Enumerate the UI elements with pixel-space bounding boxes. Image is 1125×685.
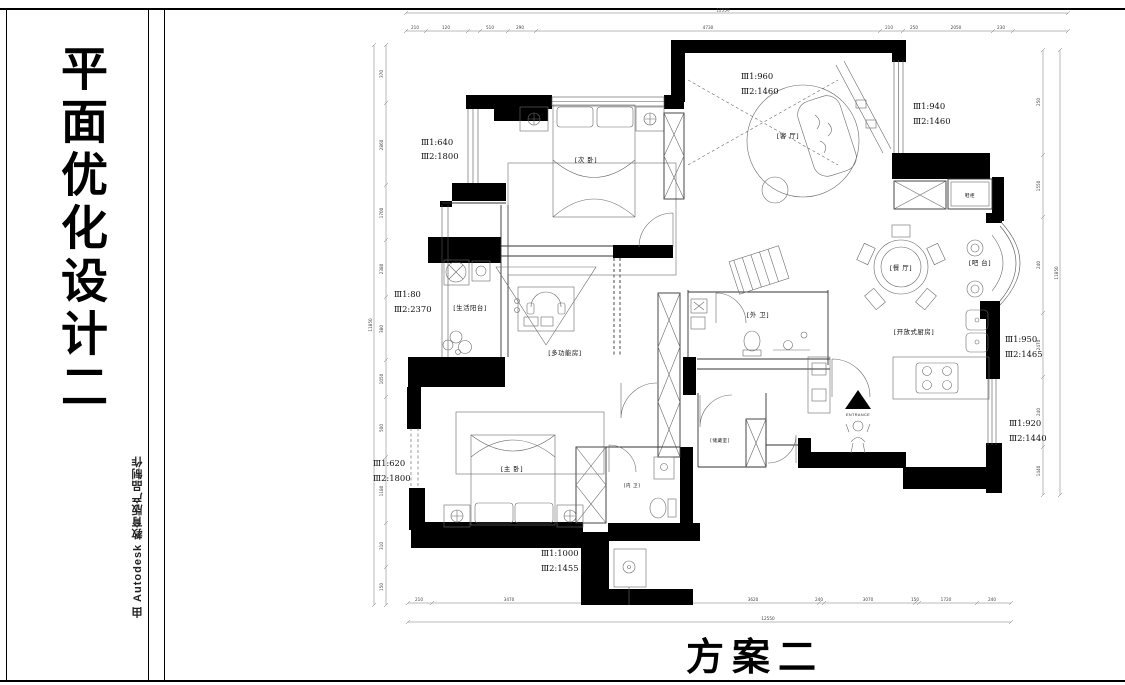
ann-left-top-2: Ⅲ2:1800 (421, 151, 459, 161)
svg-text:210: 210 (411, 25, 419, 30)
storage-fixtures (746, 419, 766, 467)
ann-top-right-2: Ⅲ2:1460 (913, 116, 951, 126)
frame-left-line (6, 8, 7, 682)
svg-text:3070: 3070 (863, 597, 874, 602)
living-label: [客 厅] (777, 131, 799, 140)
autodesk-credit: 由 Autodesk 教育版产品制作 (130, 456, 146, 618)
svg-text:290: 290 (516, 25, 524, 30)
titleblock-line-2 (164, 8, 165, 682)
dining-label: [餐 厅] (890, 263, 912, 272)
kitchen-furniture (893, 310, 989, 399)
svg-text:3620: 3620 (748, 597, 759, 602)
ann-right-low-2: Ⅲ2:1440 (1009, 433, 1047, 443)
svg-text:240: 240 (1036, 408, 1041, 416)
multi-label: [多功能房] (548, 348, 582, 357)
sheet-title: 平面优化设计二 (46, 44, 115, 415)
svg-text:230: 230 (997, 25, 1005, 30)
svg-text:510: 510 (486, 25, 494, 30)
ann-right-mid-1: Ⅲ1:950 (1005, 334, 1037, 344)
balcony-label: [生活阳台] (453, 303, 487, 312)
kitchen-label: [开放式厨房] (894, 327, 934, 336)
master-label: [主 卧] (501, 464, 523, 473)
svg-text:500: 500 (379, 424, 384, 432)
ann-top-right-1: Ⅲ1:940 (913, 101, 945, 111)
bath-outer-fixtures (691, 299, 810, 356)
svg-text:11850: 11850 (1054, 266, 1059, 280)
ann-left-top-1: Ⅲ1:640 (421, 137, 453, 147)
svg-text:1180: 1180 (379, 485, 384, 496)
bath-inner-label: [内 卫] (624, 482, 641, 489)
svg-text:250: 250 (1036, 98, 1041, 106)
svg-text:150: 150 (911, 597, 919, 602)
svg-text:1440: 1440 (1036, 465, 1041, 476)
svg-text:12550: 12550 (716, 8, 730, 13)
bedroom2-label: [次 卧] (575, 155, 597, 164)
svg-text:2860: 2860 (379, 139, 384, 150)
ann-top-1: Ⅲ1:960 (741, 71, 773, 81)
ann-left-mid-2: Ⅲ2:2370 (394, 304, 432, 314)
bath-outer-label: [外 卫] (747, 310, 769, 319)
svg-text:240: 240 (988, 597, 996, 602)
svg-text:150: 150 (379, 583, 384, 591)
svg-text:3470: 3470 (504, 597, 515, 602)
frame-bottom-line (0, 680, 1125, 682)
shoe-cabinet-label: 鞋柜 (965, 192, 975, 199)
titleblock-line-1 (148, 8, 149, 682)
svg-text:4730: 4730 (703, 25, 714, 30)
window-annotations: Ⅲ1:640 Ⅲ2:1800 Ⅲ1:960 Ⅲ2:1460 Ⅲ1:940 Ⅲ2:… (373, 71, 1047, 573)
svg-text:2380: 2380 (379, 263, 384, 274)
svg-text:1700: 1700 (379, 207, 384, 218)
entrance-label: ENTRANCE (846, 413, 870, 417)
ann-left-bottom-1: Ⅲ1:620 (373, 458, 405, 468)
entrance-arrow-icon (845, 390, 871, 409)
svg-text:1550: 1550 (1036, 180, 1041, 191)
ann-left-bottom-2: Ⅲ2:1800 (373, 473, 411, 483)
svg-text:120: 120 (442, 25, 450, 30)
svg-text:240: 240 (815, 597, 823, 602)
storage-label: [储藏室] (710, 437, 730, 444)
entry-cabinets: 鞋柜 (808, 179, 992, 413)
sheet: 平面优化设计二 由 Autodesk 教育版产品制作 方案二 12550 (0, 0, 1125, 685)
svg-text:1720: 1720 (941, 597, 952, 602)
living-room-furniture (688, 61, 891, 294)
ann-left-mid-1: Ⅲ1:80 (394, 289, 421, 299)
multi-room-furniture (496, 267, 596, 345)
ann-right-low-1: Ⅲ1:920 (1009, 418, 1041, 428)
svg-text:11850: 11850 (368, 318, 373, 332)
person-figure-icon (846, 421, 870, 453)
master-furniture (444, 412, 604, 527)
floor-plan: 12550 210 120 510 290 4730 210 250 2050 … (368, 5, 1113, 653)
svg-text:2050: 2050 (951, 25, 962, 30)
ann-right-mid-2: Ⅲ2:1465 (1005, 349, 1043, 359)
svg-text:250: 250 (910, 25, 918, 30)
bar-label: [吧 台] (969, 258, 991, 267)
ann-bottom-2: Ⅲ2:1455 (541, 563, 579, 573)
svg-text:380: 380 (379, 325, 384, 333)
ann-bottom-1: Ⅲ1:1000 (541, 548, 579, 558)
svg-text:210: 210 (885, 25, 893, 30)
svg-text:1050: 1050 (379, 373, 384, 384)
svg-text:310: 310 (379, 542, 384, 550)
entrance-marker: ENTRANCE (845, 390, 871, 453)
ann-top-2: Ⅲ2:1460 (741, 86, 779, 96)
svg-text:210: 210 (415, 597, 423, 602)
svg-text:240: 240 (1036, 261, 1041, 269)
svg-text:12550: 12550 (761, 616, 775, 621)
svg-text:370: 370 (379, 70, 384, 78)
